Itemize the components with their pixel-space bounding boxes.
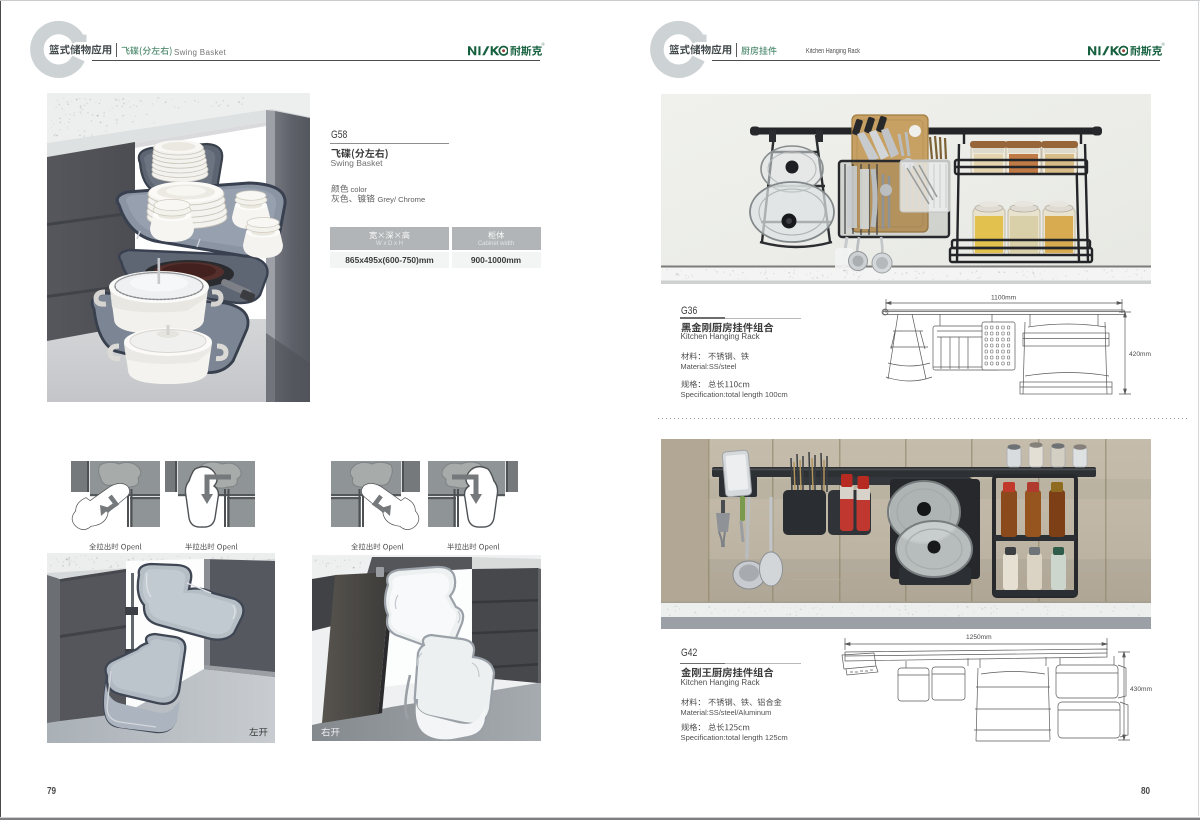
- svg-text:1250mm: 1250mm: [966, 634, 992, 641]
- svg-text:420mm: 420mm: [1129, 351, 1151, 358]
- svg-text:430mm: 430mm: [1130, 686, 1152, 693]
- svg-text:1100mm: 1100mm: [991, 295, 1017, 302]
